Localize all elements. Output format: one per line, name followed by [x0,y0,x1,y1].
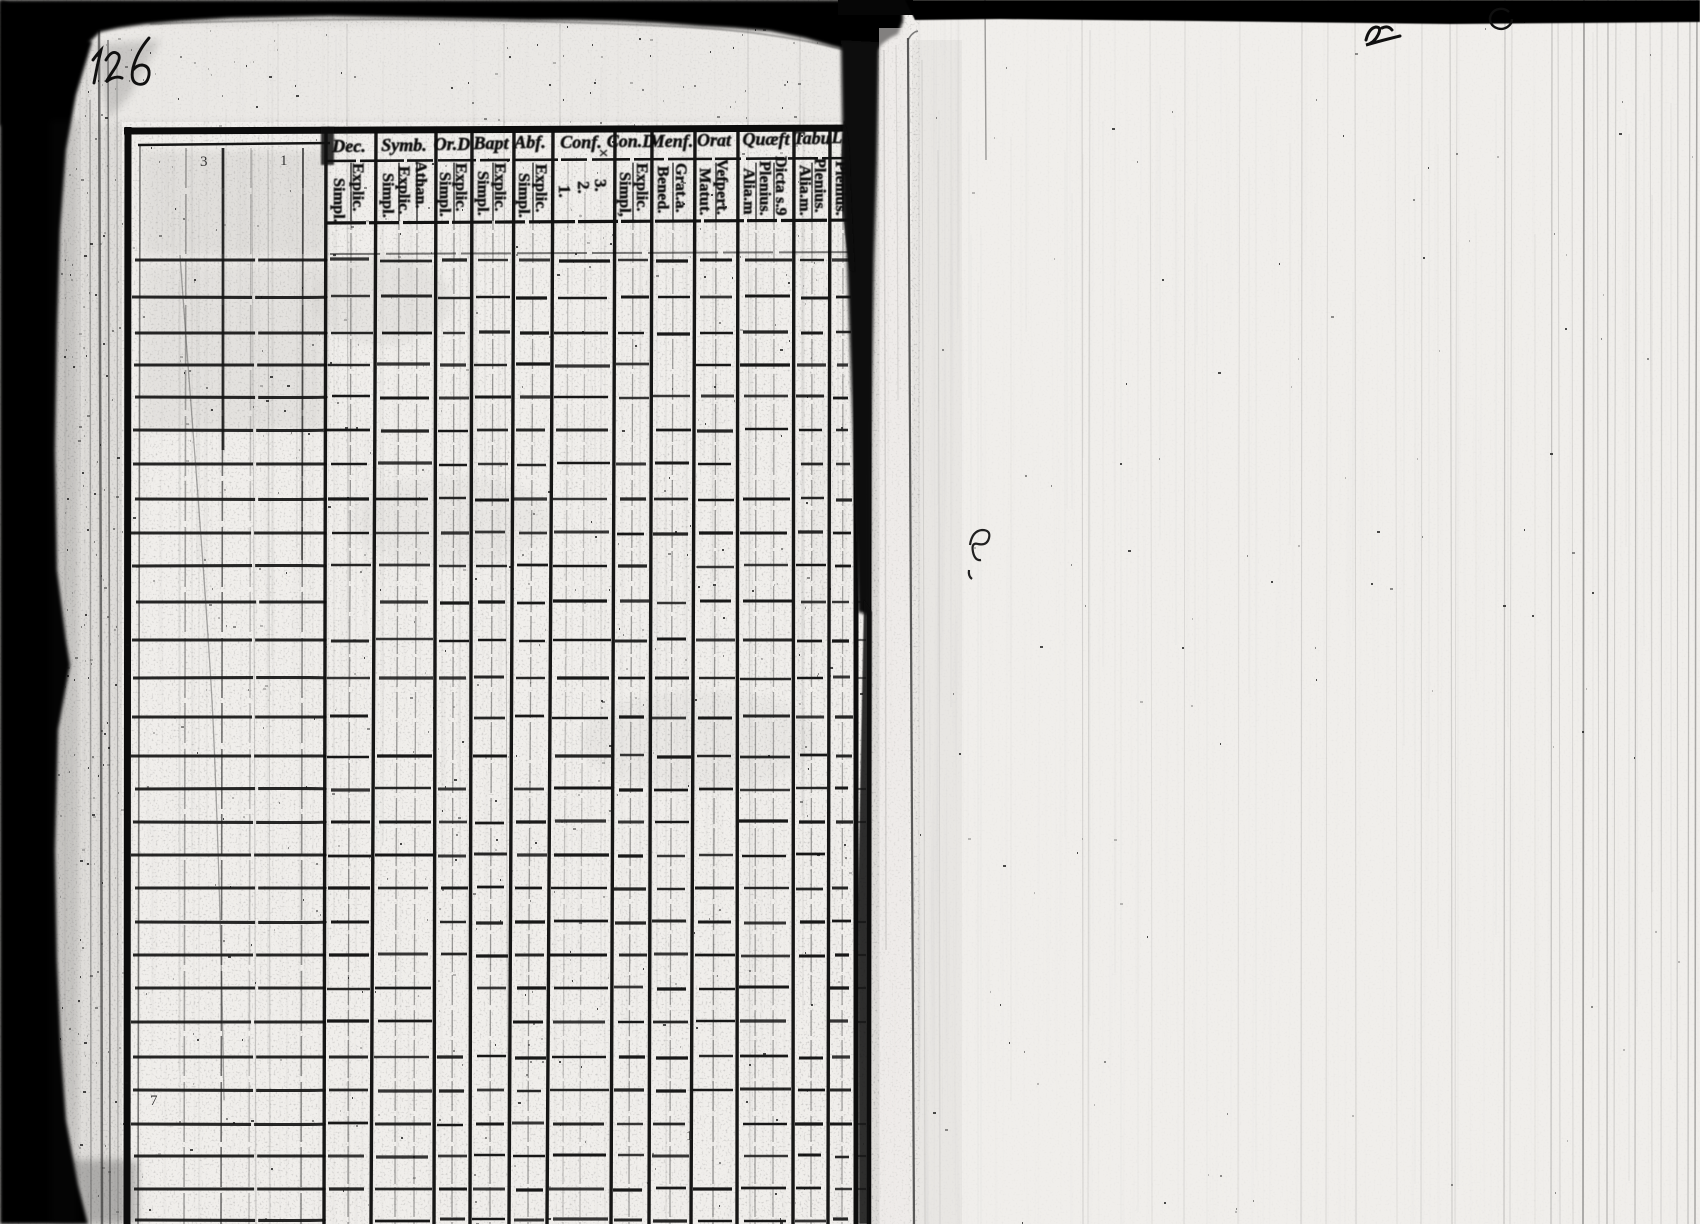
svg-text:Tabu: Tabu [793,128,830,148]
svg-text:Conf.: Conf. [560,132,602,152]
svg-text:Quæft: Quæft [742,129,790,149]
svg-text:Or.D: Or.D [434,134,471,154]
svg-text:Grat.a.: Grat.a. [672,163,691,213]
svg-text:3.: 3. [591,179,610,192]
svg-text:Matut.: Matut. [696,168,715,215]
svg-text:Symb.: Symb. [381,135,427,155]
svg-text:3: 3 [200,154,208,170]
svg-text:Simpl.: Simpl. [474,171,493,216]
svg-text:1: 1 [686,1129,693,1144]
svg-text:Vefpert.: Vefpert. [713,159,732,215]
svg-text:1: 1 [280,153,288,169]
svg-text:Simpl.: Simpl. [330,178,349,223]
svg-text:Athan.: Athan. [412,161,431,209]
svg-text:Abf.: Abf. [513,132,546,152]
svg-text:Dicta s.9: Dicta s.9 [772,156,791,216]
svg-text:Simpl,: Simpl, [616,172,635,217]
svg-text:Bened.: Bened. [654,166,673,214]
svg-text:Plenius.: Plenius. [811,158,830,213]
svg-text:Dec.: Dec. [331,136,365,156]
svg-text:Orat: Orat [697,130,732,150]
svg-text:Explic.: Explic. [452,163,471,211]
svg-text:Menf.: Menf. [648,131,694,151]
svg-text:Simpl.: Simpl. [515,173,534,218]
svg-text:1.: 1. [555,185,574,198]
svg-text:Explic.: Explic. [491,163,510,211]
svg-text:2.: 2. [574,181,593,194]
svg-text:7: 7 [150,1093,158,1109]
svg-text:Explic.: Explic. [532,164,551,212]
svg-text:Explic.: Explic. [633,163,652,211]
svg-text:Explic.: Explic. [395,166,414,214]
